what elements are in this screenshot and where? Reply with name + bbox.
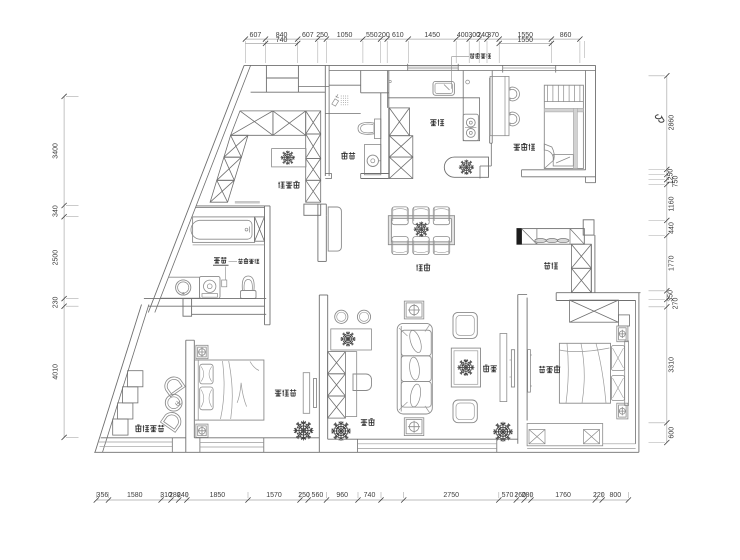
svg-text:1770: 1770 bbox=[669, 255, 676, 271]
svg-text:600: 600 bbox=[669, 427, 676, 439]
svg-text:1580: 1580 bbox=[127, 492, 143, 499]
svg-text:250: 250 bbox=[316, 32, 328, 39]
svg-text:250: 250 bbox=[298, 492, 310, 499]
svg-text:607: 607 bbox=[250, 32, 262, 39]
svg-text:340: 340 bbox=[53, 205, 60, 217]
svg-text:280: 280 bbox=[522, 492, 534, 499]
svg-text:740: 740 bbox=[276, 37, 288, 44]
svg-text:400: 400 bbox=[457, 32, 469, 39]
svg-text:1450: 1450 bbox=[424, 32, 440, 39]
svg-text:860: 860 bbox=[560, 32, 572, 39]
svg-text:1570: 1570 bbox=[266, 492, 282, 499]
svg-text:570: 570 bbox=[502, 492, 514, 499]
svg-text:356: 356 bbox=[97, 492, 109, 499]
svg-text:3400: 3400 bbox=[53, 143, 60, 159]
svg-text:1550: 1550 bbox=[518, 37, 534, 44]
svg-text:270: 270 bbox=[673, 298, 680, 310]
svg-text:610: 610 bbox=[392, 32, 404, 39]
svg-text:1160: 1160 bbox=[669, 196, 676, 211]
svg-text:1760: 1760 bbox=[555, 492, 571, 499]
svg-text:240: 240 bbox=[177, 492, 189, 499]
svg-text:1850: 1850 bbox=[210, 492, 226, 499]
svg-text:550: 550 bbox=[366, 32, 378, 39]
svg-text:740: 740 bbox=[364, 492, 376, 499]
svg-text:2860: 2860 bbox=[669, 115, 676, 131]
svg-text:370: 370 bbox=[487, 32, 499, 39]
svg-text:607: 607 bbox=[302, 32, 314, 39]
svg-text:200: 200 bbox=[378, 32, 390, 39]
svg-text:560: 560 bbox=[312, 492, 324, 499]
svg-text:750: 750 bbox=[673, 176, 680, 188]
svg-text:2500: 2500 bbox=[53, 250, 60, 266]
svg-text:4010: 4010 bbox=[53, 364, 60, 380]
svg-text:2750: 2750 bbox=[443, 492, 459, 499]
svg-text:800: 800 bbox=[609, 492, 621, 499]
svg-text:1050: 1050 bbox=[337, 32, 353, 39]
svg-text:440: 440 bbox=[669, 222, 676, 234]
svg-text:220: 220 bbox=[593, 492, 605, 499]
svg-text:3310: 3310 bbox=[669, 357, 676, 373]
svg-text:230: 230 bbox=[53, 296, 60, 308]
svg-text:960: 960 bbox=[336, 492, 348, 499]
